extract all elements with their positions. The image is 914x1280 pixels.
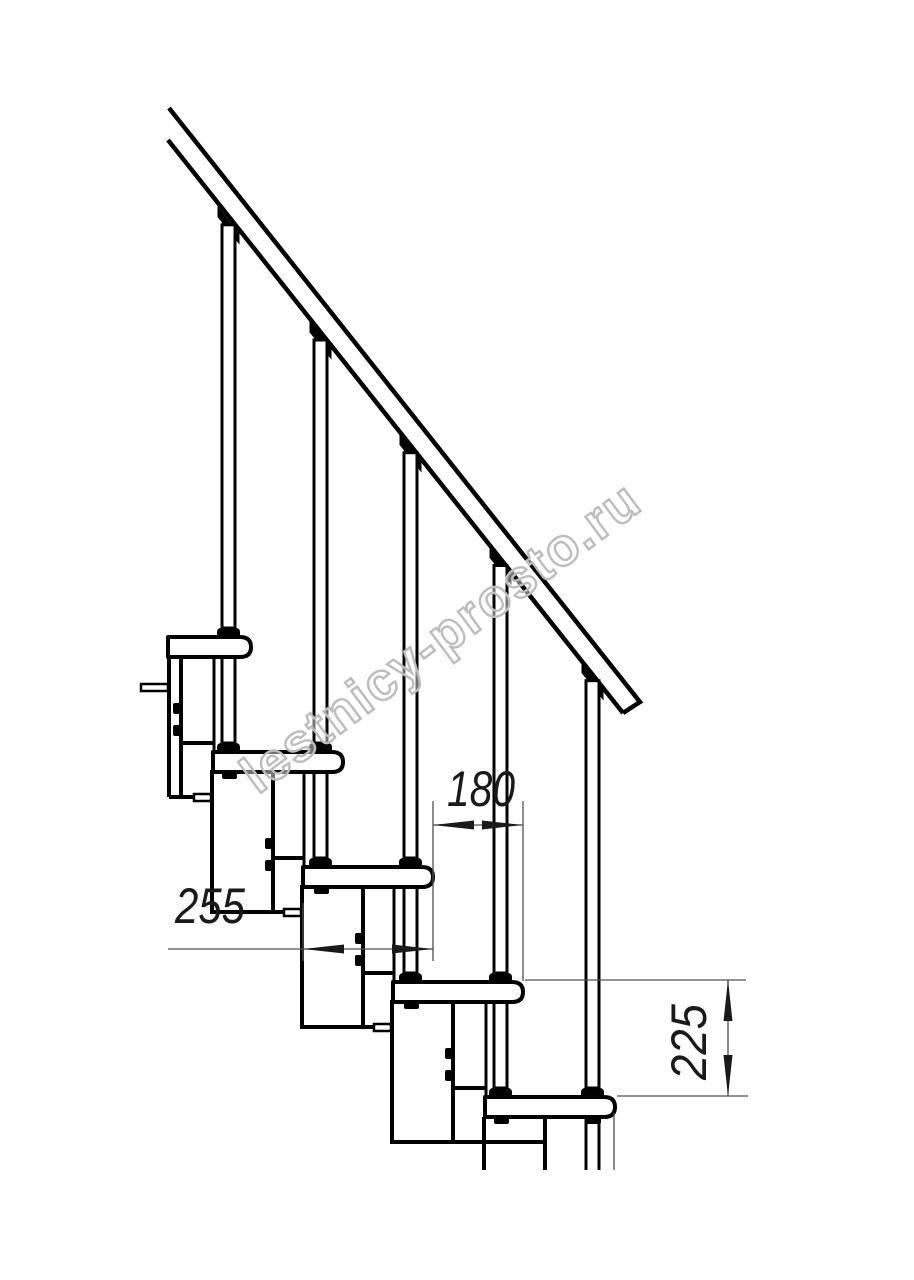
baluster-1 — [222, 225, 235, 628]
tread-3 — [303, 867, 433, 887]
post-under-tread-4 — [494, 1002, 507, 1088]
module-tab-3 — [284, 909, 301, 916]
bolt — [265, 860, 273, 871]
bolt — [173, 725, 181, 736]
bolt — [355, 933, 363, 944]
dimension-value-225: 225 — [661, 1004, 717, 1081]
baluster-2 — [314, 340, 327, 743]
bolt — [173, 703, 181, 714]
post-under-tread-3 — [404, 887, 417, 973]
module-box-4 — [392, 1002, 453, 1142]
arrowhead-left-icon — [433, 821, 474, 830]
collar — [217, 628, 240, 638]
bolt — [445, 1048, 453, 1059]
under-tread-nub — [494, 1116, 509, 1124]
dimension-value-180: 180 — [447, 761, 515, 817]
bolt — [265, 838, 273, 849]
module-tab-4 — [374, 1024, 391, 1031]
dimension-step-run: 180 — [433, 761, 523, 981]
module-tab-1 — [141, 684, 168, 691]
collar — [489, 1088, 512, 1098]
under-tread-nub — [222, 771, 237, 779]
module-tab-2 — [194, 794, 211, 801]
post-under-tread-5 — [586, 1117, 599, 1170]
collar — [399, 973, 422, 983]
tread-5 — [485, 1097, 615, 1117]
bolt — [355, 955, 363, 966]
under-tread-nub — [404, 1001, 419, 1009]
collar — [309, 858, 332, 868]
bolt — [445, 1070, 453, 1081]
under-tread-nub — [586, 1116, 601, 1124]
dimension-step-rise: 225 — [525, 980, 748, 1170]
collar — [399, 858, 422, 868]
post-under-tread-1 — [222, 657, 235, 743]
baluster-5 — [586, 681, 599, 1088]
tread-1 — [168, 637, 251, 657]
collar — [581, 1088, 604, 1098]
collar — [489, 973, 512, 983]
module-box-3 — [302, 887, 363, 1027]
tread-4 — [393, 982, 523, 1002]
staircase-drawing: lestnicy-prosto.ru 180 255 225 — [0, 0, 914, 1280]
dimension-value-255: 255 — [174, 878, 245, 934]
post-under-tread-2 — [314, 772, 327, 858]
staircase-drawing-page: lestnicy-prosto.ru 180 255 225 — [0, 0, 914, 1280]
arrowhead-down-icon — [724, 1055, 733, 1096]
under-tread-nub — [314, 886, 329, 894]
arrowhead-up-icon — [724, 980, 733, 1021]
